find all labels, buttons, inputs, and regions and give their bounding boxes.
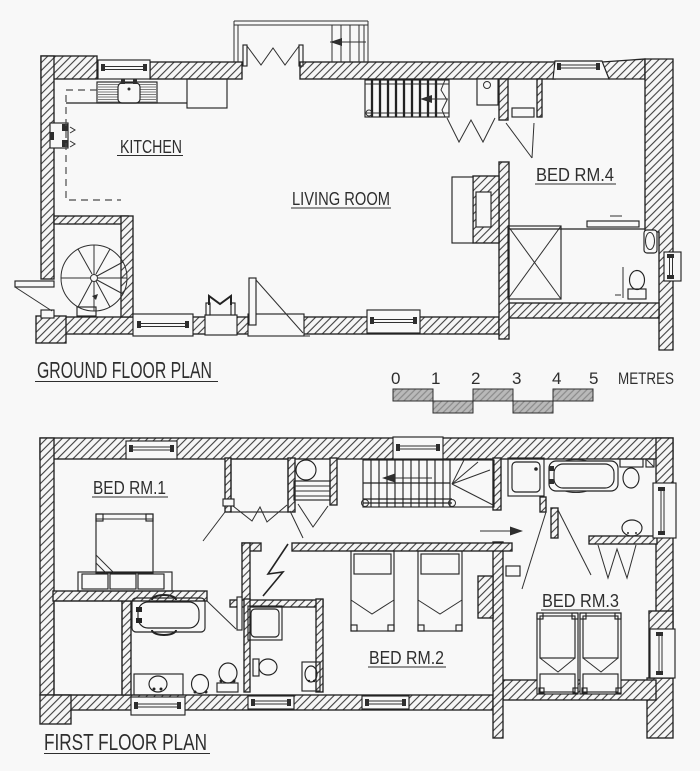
svg-text:GROUND FLOOR PLAN: GROUND FLOOR PLAN xyxy=(37,357,212,383)
svg-text:LIVING ROOM: LIVING ROOM xyxy=(292,189,390,209)
svg-text:5: 5 xyxy=(589,369,598,388)
svg-text:4: 4 xyxy=(552,369,561,388)
svg-text:BED RM.4: BED RM.4 xyxy=(536,165,614,185)
svg-text:BED RM.3: BED RM.3 xyxy=(542,591,619,611)
svg-text:KITCHEN: KITCHEN xyxy=(120,137,182,157)
svg-text:0: 0 xyxy=(391,369,400,388)
svg-text:METRES: METRES xyxy=(618,369,674,388)
svg-text:2: 2 xyxy=(471,369,480,388)
svg-text:1: 1 xyxy=(431,369,440,388)
svg-text:BED RM.2: BED RM.2 xyxy=(369,648,444,668)
svg-text:FIRST FLOOR PLAN: FIRST FLOOR PLAN xyxy=(44,729,207,755)
svg-text:BED RM.1: BED RM.1 xyxy=(93,478,166,498)
svg-text:3: 3 xyxy=(512,369,521,388)
